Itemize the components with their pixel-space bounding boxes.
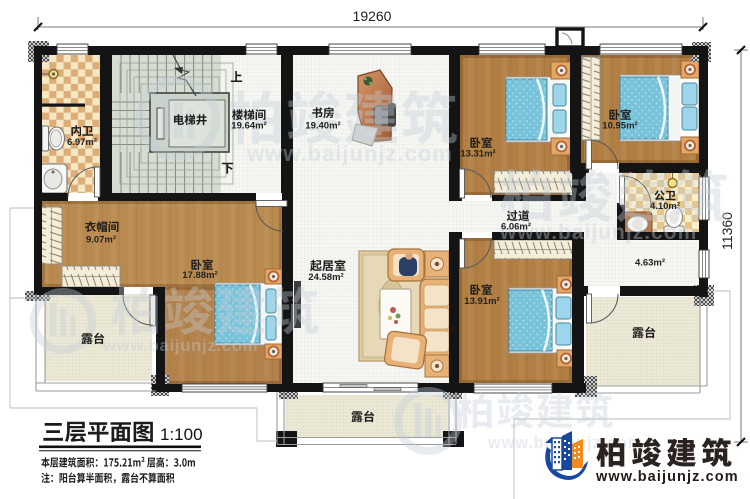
svg-text:4.63m²: 4.63m² <box>635 258 665 269</box>
svg-text:www.baijunjz.com: www.baijunjz.com <box>595 469 739 485</box>
svg-text:6.06m²: 6.06m² <box>501 222 531 233</box>
svg-text:www.baijunjz.com: www.baijunjz.com <box>102 337 258 355</box>
svg-text:9.07m²: 9.07m² <box>86 235 116 246</box>
svg-text:10.95m²: 10.95m² <box>602 121 637 132</box>
svg-text:24.58m²: 24.58m² <box>308 272 343 283</box>
svg-text:19.40m²: 19.40m² <box>305 121 340 132</box>
svg-text:17.88m²: 17.88m² <box>182 270 217 281</box>
svg-text:4.10m²: 4.10m² <box>650 201 680 212</box>
svg-text:1:100: 1:100 <box>160 425 203 444</box>
svg-text:13.31m²: 13.31m² <box>460 149 495 160</box>
svg-text:13.91m²: 13.91m² <box>464 296 499 307</box>
svg-text:6.97m²: 6.97m² <box>67 137 97 148</box>
svg-text:www.baijunjz.com: www.baijunjz.com <box>246 141 453 166</box>
svg-text:19260: 19260 <box>353 8 392 24</box>
svg-text:19.64m²: 19.64m² <box>231 121 266 132</box>
